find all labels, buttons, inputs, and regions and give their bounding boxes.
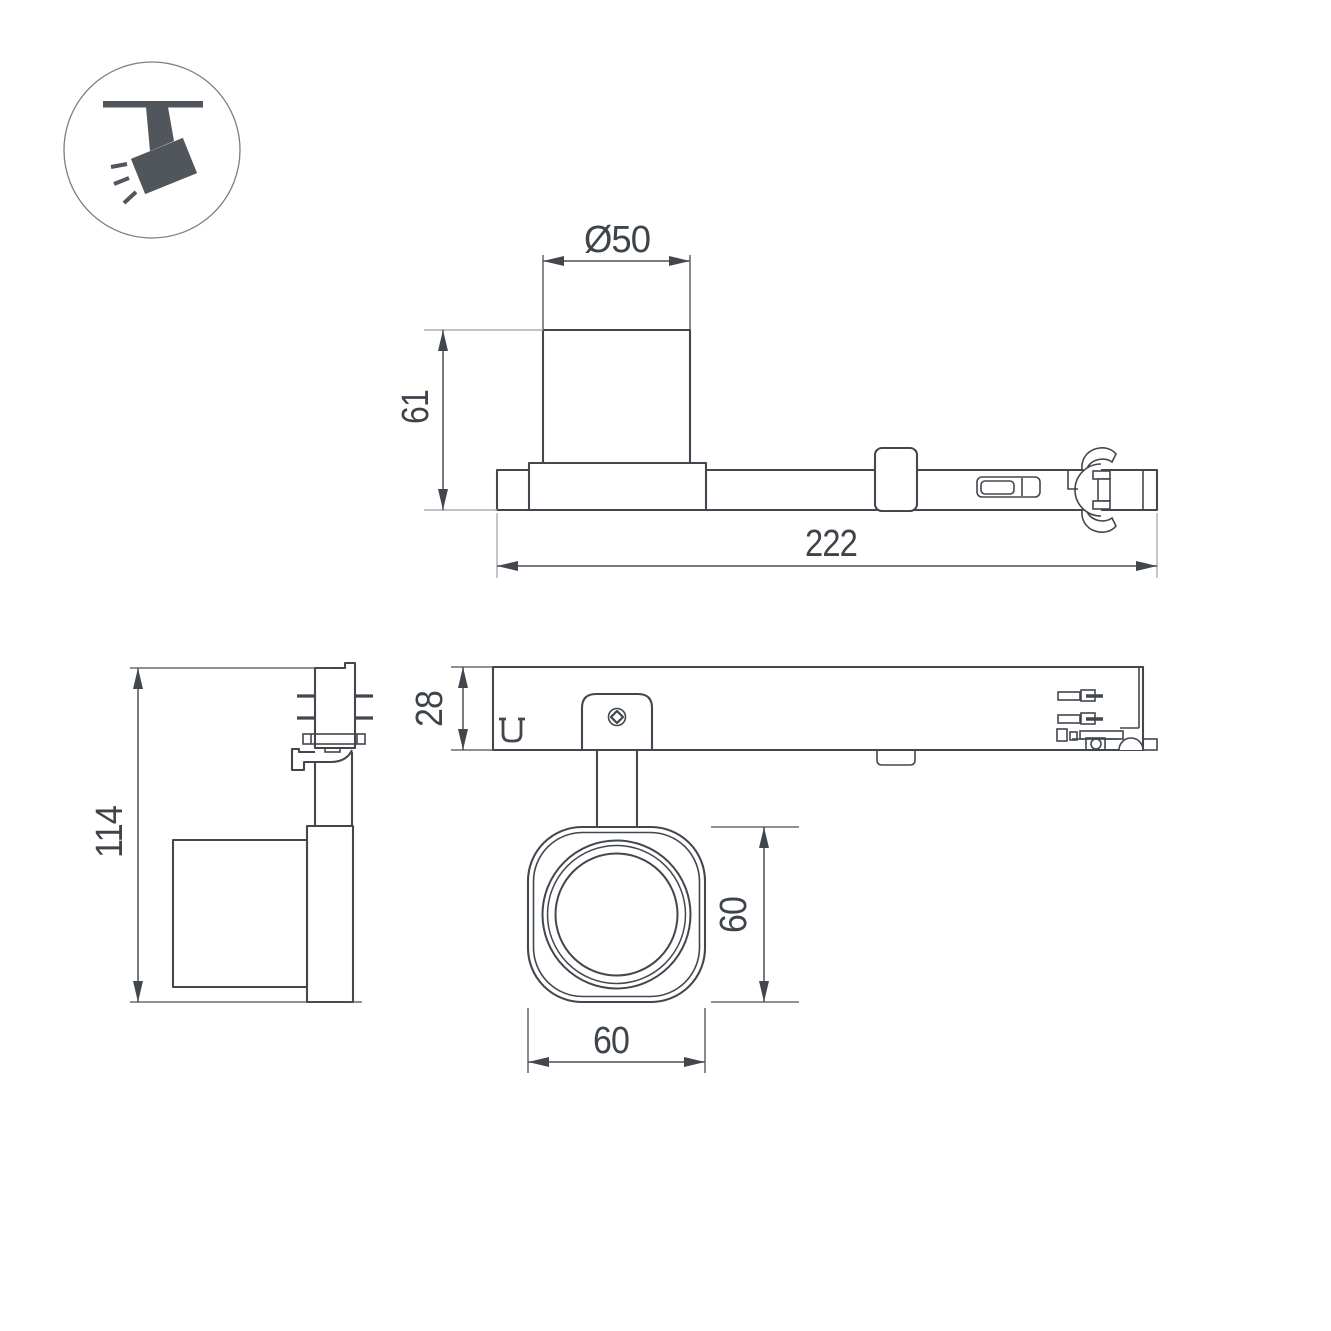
dim-ext-light xyxy=(424,330,1157,578)
latch-clip-side xyxy=(1068,448,1116,532)
dim-head-height-label: 60 xyxy=(713,897,755,933)
tab-below-track-plan xyxy=(877,750,915,765)
technical-drawing: Ø50 61 222 114 xyxy=(0,0,1331,1331)
mount-hook-end xyxy=(292,749,352,770)
head-front-view: 60 60 xyxy=(528,827,799,1073)
dim-head-width-label: 60 xyxy=(593,1020,629,1062)
track-spotlight-icon xyxy=(64,62,240,238)
side-view: Ø50 61 222 xyxy=(395,219,1157,578)
dim-ext-diameter xyxy=(543,255,690,330)
spotlight-head-icon xyxy=(131,138,197,194)
track-bar-plan xyxy=(493,667,1143,750)
dim-diameter-label: Ø50 xyxy=(584,219,650,261)
dim-track-width-label: 28 xyxy=(409,691,451,727)
dim-track-length-label: 222 xyxy=(805,523,857,565)
plan-view: 28 xyxy=(409,667,1157,827)
side-view-dimensions: Ø50 61 222 xyxy=(395,219,1157,578)
end-view: 114 xyxy=(89,663,373,1002)
contact-pins-end xyxy=(297,696,373,718)
body-block-end xyxy=(307,826,353,1002)
cylinder-body-side xyxy=(543,330,690,463)
icon-fill-shapes xyxy=(103,101,203,194)
lamp-head-end xyxy=(173,840,307,987)
technical-drawing-page: Ø50 61 222 114 xyxy=(0,0,1331,1331)
track-adapter-end xyxy=(315,663,355,748)
dim-total-height-label: 114 xyxy=(89,805,131,858)
dim-body-height-label: 61 xyxy=(395,390,437,424)
end-tab-plan xyxy=(1143,739,1157,750)
ceiling-line-icon xyxy=(103,101,203,108)
hook-slot xyxy=(325,748,340,752)
stem-end xyxy=(315,752,352,826)
track-block-side xyxy=(875,448,917,511)
light-rays-icon xyxy=(111,164,136,203)
adapter-base-side xyxy=(529,463,706,510)
plan-view-dimensions: 28 xyxy=(409,667,493,750)
stem-plan xyxy=(597,750,637,827)
